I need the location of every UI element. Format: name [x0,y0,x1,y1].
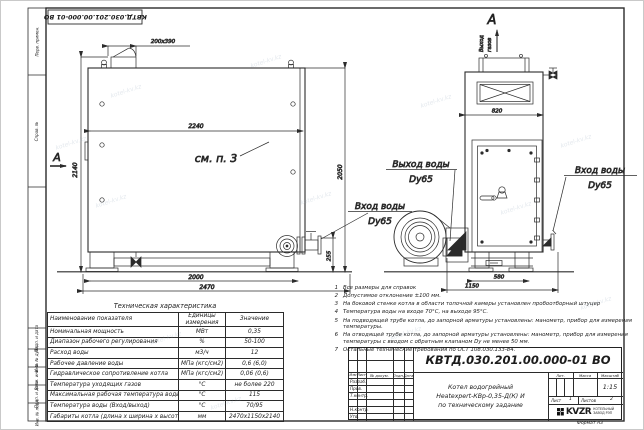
side-view: А 2240 200х390 2140 2050 2000 2470 255 с… [50,39,352,294]
tech-characteristics: Техническая характеристика Наименование … [47,302,283,422]
sheet-label: Лист [551,398,561,403]
table-row: Гидравлическое сопротивление котлаМПа (к… [48,369,284,380]
table-row: Диапазон рабочего регулирования%50-100 [48,337,284,348]
front-section-a-label: А [487,13,497,28]
doc-number: КВТД.030.201.00.000-01 ВО [413,348,623,372]
note-item: 5На подводящей трубе котла, до запорной … [331,318,633,332]
row-utv: Утв. [350,414,359,419]
water-outlet-label: Выход воды [392,160,449,170]
tech-table-header: Наименование показателя Единицы измерени… [48,313,284,327]
dim-2470: 2470 [199,284,214,291]
upper-hatch [477,82,533,104]
hdr-doc: № докум. [366,372,393,378]
door-lock [497,187,507,198]
mount-marks [85,102,295,202]
water-inlet-flange [543,230,556,250]
see-note-label: см. п. 3 [195,152,238,165]
title-block: Изм Лист № докум. Подп. Дата Разраб. Про… [348,347,622,420]
table-row: Максимальная рабочая температура воды°С1… [48,390,284,401]
col-unit-header: Единицы измерения [179,313,226,327]
note-item: 2Допустимое отклонение ±100 мм. [331,293,633,300]
hdr-massa: Масса [573,372,597,378]
dim-2050: 2050 [337,164,344,179]
row-prov: Пров. [350,386,362,391]
tech-table-title: Техническая характеристика [47,302,283,310]
door-hinges [535,158,540,240]
table-row: Номинальная мощностьМВт0,35 [48,327,284,338]
row-razrab: Разраб. [350,379,366,384]
water-inlet-dn: Dy65 [368,217,392,227]
table-row: Расход водым3/ч12 [48,348,284,359]
margin-cell-inv-podl: Инв. № подл. [28,403,46,421]
notes-list: 1Все размеры для справок 2Допустимое отк… [331,285,633,355]
col-name-header: Наименование показателя [48,313,179,327]
dim-580: 580 [494,275,505,281]
section-a-label: А [52,151,61,164]
front-view: А Выход газов 820 580 1150 [443,13,558,293]
col-value-header: Значение [226,313,284,327]
pipe-labels: Выход воды Dy65 Вход воды Dy65 Вход воды… [321,160,637,241]
inlet-flange [277,232,322,257]
access-door [472,140,542,252]
drawing-sheet: А 2240 200х390 2140 2050 2000 2470 255 с… [0,0,644,430]
gas-outlet-label-2: газов [487,38,493,52]
air-vent-valve [543,68,557,79]
side-dimensions [81,46,350,294]
hdr-podp: Подп. [393,372,404,378]
table-row: Температура воды (Вход/выход)°С70/95 [48,401,284,412]
row-tkontr: Т.контр. [350,393,368,398]
title-line-1: Котел водогрейный [448,383,513,392]
drawing-title: Котел водогрейный Heatexpert-КВр-0,35-Д(… [413,372,548,421]
door-handle [480,196,496,200]
note-item: 6На отводящей трубе котла, до запорной а… [331,332,633,346]
title-line-3: по техническому задание [438,401,523,410]
margin-cell-sprav: Справ. № [28,75,46,187]
kvzr-logo: KVZR КОТЕЛЬНЫЙ ЗАВОД РЭП [548,404,623,419]
blower-fan [384,211,574,272]
hdr-data: Дата [404,372,413,378]
water-inlet2-dn: Dy65 [588,181,612,191]
top-stamp-box: КВТД.030.201.00.000-01 ВО [48,10,142,24]
dim-2140: 2140 [72,162,79,177]
dim-200x390: 200х390 [151,39,176,45]
note-item: 4Температура воды на входе 70°С, на выхо… [331,309,633,316]
sheet-num: 1 [569,397,572,402]
water-outlet-dn: Dy65 [409,175,433,185]
front-supports [469,252,533,272]
title-line-2: Heatexpert-КВр-0,35-Д(К) И [436,392,525,401]
margin-cell-perv: Перв. примен. [28,8,46,75]
kvzr-logo-icon [557,408,564,416]
chimney-stub [111,48,136,68]
flue-box [479,54,529,72]
top-stamp-number: КВТД.030.201.00.000-01 ВО [44,13,147,21]
sheets-num: 2 [610,397,613,402]
water-inlet-label: Вход воды [355,202,405,212]
note-item: 3На боковой стенке котла в области топоч… [331,301,633,308]
kvzr-logo-text: KVZR [566,407,591,417]
note-item: 1Все размеры для справок [331,285,633,292]
kvzr-logo-subtitle: КОТЕЛЬНЫЙ ЗАВОД РЭП [593,408,614,415]
lifting-eyes [102,60,294,68]
hdr-list: Лист [357,372,366,378]
format-label: Формат А3 [555,421,625,426]
dim-820: 820 [492,109,503,115]
drain-valve [131,252,141,267]
hdr-izm: Изм [349,372,357,378]
scale-value: 1:15 [597,378,623,396]
table-row: Температура уходящих газов°Сне более 220 [48,379,284,390]
gas-outlet-label-1: Выход [479,35,485,52]
table-row: Рабочее давление водыМПа (кгс/см2)0,6 (6… [48,358,284,369]
water-inlet2-label: Вход воды [575,166,625,176]
table-row: Габариты котла (длина х ширина х высота)… [48,411,284,422]
sheets-label: Листов [581,398,596,403]
side-supports [57,252,352,272]
row-nkontr: Н.контр. [350,407,369,412]
dim-2000: 2000 [188,274,203,281]
hdr-lit: Лит. [548,372,573,378]
dim-255: 255 [327,250,333,261]
dim-2240: 2240 [188,123,203,130]
tech-table: Наименование показателя Единицы измерени… [47,312,284,422]
